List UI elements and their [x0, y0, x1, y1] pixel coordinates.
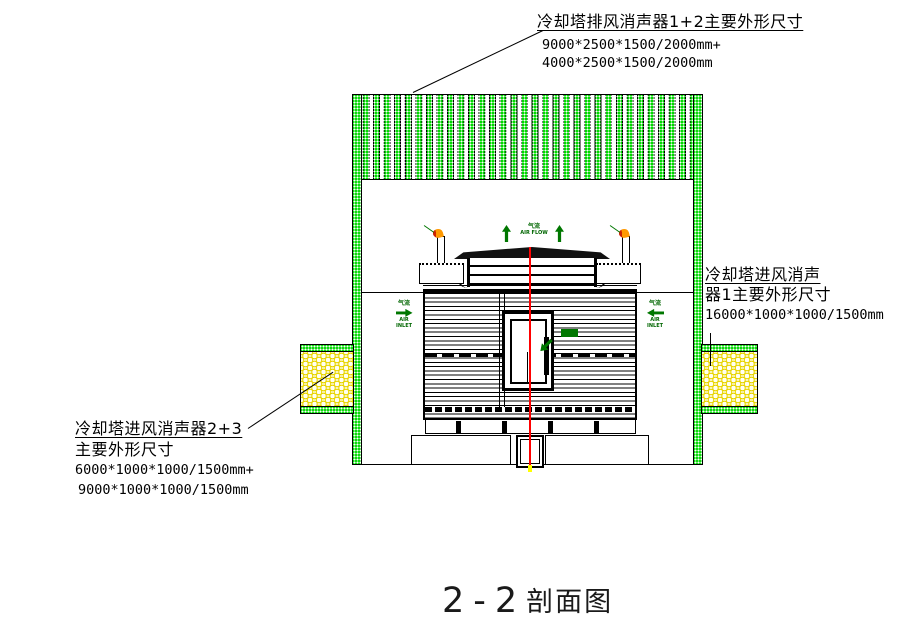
basin-post — [548, 421, 553, 433]
tower-post-left — [437, 236, 445, 265]
exhaust-leader-line — [413, 30, 543, 93]
flag-tick-right — [610, 225, 621, 233]
platform-line-right — [637, 292, 694, 293]
intake-right-bottom-strip — [702, 406, 757, 413]
air-flow-up-arrow-left-icon — [502, 225, 511, 242]
fan-cowl — [467, 258, 597, 287]
pedestal-right — [545, 435, 649, 465]
exhaust-silencer-baffles — [352, 94, 703, 180]
pedestal-left — [411, 435, 511, 465]
air-flow-up-arrow-right-icon — [555, 225, 564, 242]
intake23-dim-2: 9000*1000*1000/1500mm — [75, 480, 254, 500]
air-inlet-left-en2: INLET — [396, 324, 412, 330]
intake-left-bottom-strip — [301, 406, 353, 413]
intake1-leader-line — [710, 333, 711, 366]
air-inlet-right-label: 气流 AIR INLET — [641, 301, 669, 329]
air-inlet-left-arrow-icon — [396, 309, 413, 317]
drawing-canvas: 气流 AIR FLOW 气流 AIR INLET 气流 AIR INLET — [0, 0, 909, 635]
exhaust-annotation-title: 冷却塔排风消声器1+2主要外形尺寸 — [537, 12, 803, 32]
tower-pipe-line-1 — [499, 294, 500, 407]
platform-box-left — [419, 263, 464, 284]
intake1-dim-1: 16000*1000*1000/1500mm — [705, 305, 884, 325]
tower-centerline — [529, 247, 531, 465]
door-inner-line — [527, 352, 528, 383]
section-title-number: 2-2 — [442, 581, 526, 621]
intake1-annotation: 冷却塔进风消声 器1主要外形尺寸 16000*1000*1000/1500mm — [705, 265, 884, 325]
intake1-title-line1: 冷却塔进风消声 — [705, 265, 884, 285]
intake23-title-line2: 主要外形尺寸 — [75, 439, 254, 460]
air-inlet-left-cn: 气流 — [398, 301, 410, 308]
air-inlet-right-arrow-icon — [647, 309, 664, 317]
tower-post-right — [622, 236, 630, 265]
intake-left-core — [301, 352, 353, 406]
basin-post — [502, 421, 507, 433]
intake-silencer-left — [300, 344, 354, 414]
air-inlet-left-label: 气流 AIR INLET — [390, 301, 418, 329]
centerline-end-mark — [528, 465, 532, 472]
section-title: 2-2 剖面图 — [442, 580, 613, 621]
basin-post — [594, 421, 599, 433]
door-marker — [561, 329, 578, 337]
intake23-title-line1: 冷却塔进风消声器2+3 — [75, 418, 254, 439]
basin-post — [456, 421, 461, 433]
intake1-title-line2: 器1主要外形尺寸 — [705, 285, 884, 305]
exhaust-dim-2: 4000*2500*1500/2000mm — [537, 54, 803, 72]
exhaust-dim-1: 9000*2500*1500/2000mm+ — [537, 36, 803, 54]
air-inlet-right-cn: 气流 — [649, 301, 661, 308]
platform-line-left — [362, 292, 423, 293]
air-flow-label: 气流 AIR FLOW — [513, 224, 555, 237]
air-flow-label-en: AIR FLOW — [513, 231, 555, 237]
section-title-suffix: 剖面图 — [526, 580, 613, 621]
exhaust-annotation: 冷却塔排风消声器1+2主要外形尺寸 9000*2500*1500/2000mm+… — [537, 12, 803, 72]
air-inlet-right-en2: INLET — [647, 324, 663, 330]
intake23-dim-1: 6000*1000*1000/1500mm+ — [75, 460, 254, 480]
platform-box-right — [596, 263, 641, 284]
intake-left-top-strip — [301, 345, 353, 352]
intake23-annotation: 冷却塔进风消声器2+3 主要外形尺寸 6000*1000*1000/1500mm… — [75, 418, 254, 500]
flag-tick-left — [424, 225, 435, 233]
